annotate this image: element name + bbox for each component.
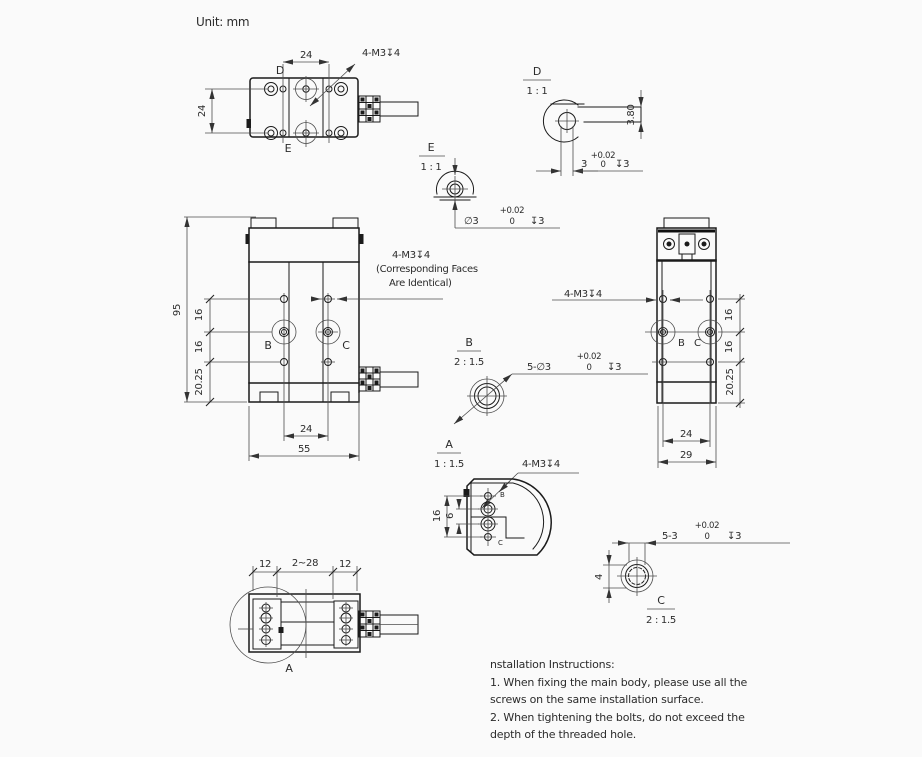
detail-e-depth: ↧3 [530, 216, 544, 227]
front-label-b: B [264, 339, 271, 352]
notes-line2: screws on the same installation surface. [490, 693, 704, 706]
side-dim-2025: 20.25 [725, 368, 736, 395]
top-label-e: E [285, 142, 292, 155]
detail-b-depth: ↧3 [607, 362, 621, 373]
detail-e-tol-zero: 0 [509, 217, 514, 227]
notes-line1: 1. When fixing the main body, please use… [490, 676, 747, 689]
side-label-b: B [678, 338, 685, 349]
detail-c-callout: 5-3 [662, 531, 677, 542]
front-view: B C 95 16 16 20.25 24 55 4-M3↧4 (Corresp… [172, 217, 478, 461]
detail-view-b: B 2 : 1.5 5-∅3 +0.02 0 ↧3 [454, 336, 648, 424]
detail-view-d: D 1 : 1 3.80 3 +0.02 0 ↧3 [523, 65, 643, 176]
side-dim-16a: 16 [724, 309, 735, 321]
detail-b-callout: 5-∅3 [527, 362, 551, 373]
front-callout-line1: 4-M3↧4 [392, 250, 430, 261]
detail-d-tol-zero: 0 [600, 160, 605, 170]
detail-b-tol-plus: +0.02 [577, 352, 602, 362]
front-dim-95: 95 [172, 304, 183, 316]
detail-a-dim-6: 6 [445, 513, 456, 519]
detail-c-tol-plus: +0.02 [695, 521, 720, 531]
detail-d-dim-380: 3.80 [626, 104, 637, 125]
unit-label: Unit: mm [196, 15, 249, 29]
detail-a-scale: 1 : 1.5 [434, 459, 464, 470]
side-callout-4m3: 4-M3↧4 [564, 289, 602, 300]
bottom-dim-12-left: 12 [259, 559, 271, 570]
detail-c-dim-4: 4 [594, 574, 605, 580]
bottom-view: A 12 2~28 12 [230, 558, 418, 675]
detail-d-scale: 1 : 1 [527, 86, 548, 97]
detail-d-depth: ↧3 [615, 159, 629, 170]
side-view: B C 16 16 20.25 24 29 4-M3↧4 [552, 218, 745, 468]
drawing-sheet: Unit: mm 24 4-M3↧4 24 [0, 0, 922, 757]
detail-d-label: D [533, 65, 541, 78]
side-dim-16b: 16 [724, 341, 735, 353]
detail-c-label: C [657, 594, 665, 607]
detail-c-tol-zero: 0 [704, 532, 709, 542]
front-label-c: C [342, 339, 350, 352]
notes-line4: depth of the threaded hole. [490, 728, 636, 741]
front-dim-16b: 16 [194, 341, 205, 353]
detail-c-scale: 2 : 1.5 [646, 615, 676, 626]
front-callout-line2: (Corresponding Faces [376, 264, 478, 275]
bottom-dim-stroke: 2~28 [292, 558, 318, 569]
top-label-d: D [276, 64, 284, 77]
detail-b-label: B [465, 336, 472, 349]
detail-e-tol-plus: +0.02 [500, 206, 525, 216]
front-dim-24: 24 [300, 424, 312, 435]
detail-e-scale: 1 : 1 [421, 162, 442, 173]
detail-e-dim-hole: ∅3 [464, 216, 478, 227]
detail-c-depth: ↧3 [727, 531, 741, 542]
notes-line3: 2. When tightening the bolts, do not exc… [490, 711, 745, 724]
side-dim-29: 29 [680, 450, 692, 461]
front-dim-2025: 20.25 [194, 368, 205, 395]
detail-d-dim-3: 3 [581, 159, 587, 170]
detail-a-dim-16: 16 [432, 510, 443, 522]
bottom-label-a: A [285, 662, 293, 675]
detail-e-label: E [428, 141, 435, 154]
side-label-c: C [694, 338, 701, 349]
top-dim-24-width: 24 [300, 50, 312, 61]
front-callout-line3: Are Identical) [389, 278, 452, 289]
detail-a-label-b: B [500, 491, 505, 499]
notes-title: nstallation Instructions: [490, 658, 615, 671]
installation-notes: nstallation Instructions: 1. When fixing… [490, 658, 747, 741]
detail-view-a: A 1 : 1.5 4-M3↧4 B C 16 6 [432, 438, 579, 555]
technical-drawing: Unit: mm 24 4-M3↧4 24 [0, 0, 922, 757]
detail-a-label: A [445, 438, 453, 451]
detail-view-e: E 1 : 1 ∅3 +0.02 0 ↧3 [419, 141, 560, 228]
front-dim-55: 55 [298, 444, 310, 455]
side-dim-24: 24 [680, 429, 692, 440]
detail-b-tol-zero: 0 [586, 363, 591, 373]
top-dim-24-height: 24 [197, 105, 208, 117]
front-dim-16a: 16 [194, 309, 205, 321]
top-callout-4m3: 4-M3↧4 [362, 48, 400, 59]
detail-view-c: 5-3 +0.02 0 ↧3 4 C 2 : 1.5 [594, 521, 790, 626]
detail-a-callout: 4-M3↧4 [522, 459, 560, 470]
bottom-dim-12-right: 12 [339, 559, 351, 570]
top-view: 24 4-M3↧4 24 D E [197, 48, 418, 155]
detail-a-label-c: C [498, 539, 503, 547]
detail-b-scale: 2 : 1.5 [454, 357, 484, 368]
